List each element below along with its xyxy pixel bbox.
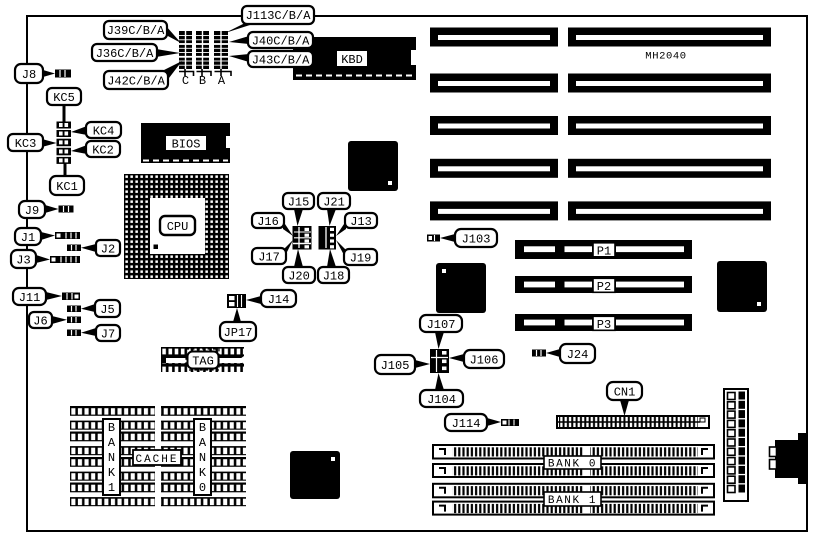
svg-text:J13: J13: [350, 215, 372, 229]
svg-text:J21: J21: [323, 196, 345, 210]
svg-text:P2: P2: [597, 280, 611, 294]
svg-text:N: N: [199, 451, 206, 465]
svg-text:JP17: JP17: [224, 326, 253, 340]
svg-text:1: 1: [108, 481, 115, 495]
svg-text:B: B: [199, 421, 206, 435]
svg-text:J24: J24: [567, 348, 589, 362]
svg-text:J36C/B/A: J36C/B/A: [96, 47, 154, 61]
svg-text:J6: J6: [33, 315, 47, 329]
svg-text:J42C/B/A: J42C/B/A: [107, 75, 165, 89]
svg-text:CACHE: CACHE: [135, 454, 178, 466]
svg-text:J9: J9: [25, 204, 39, 218]
svg-text:TAG: TAG: [192, 355, 214, 369]
svg-text:J18: J18: [323, 270, 345, 284]
svg-text:KC1: KC1: [56, 180, 78, 194]
svg-text:J106: J106: [470, 354, 499, 368]
svg-text:J2: J2: [101, 243, 115, 257]
svg-text:P1: P1: [597, 245, 611, 259]
svg-text:J40C/B/A: J40C/B/A: [252, 35, 310, 49]
svg-text:BIOS: BIOS: [172, 138, 201, 152]
svg-text:J114: J114: [452, 417, 481, 431]
svg-text:BANK 1: BANK 1: [548, 495, 597, 507]
svg-text:J104: J104: [427, 393, 456, 407]
svg-text:CPU: CPU: [167, 220, 189, 234]
svg-text:J20: J20: [288, 270, 310, 284]
svg-text:K: K: [108, 466, 116, 480]
svg-text:J14: J14: [268, 293, 290, 307]
svg-text:J11: J11: [19, 291, 41, 305]
svg-text:N: N: [108, 451, 115, 465]
svg-text:BANK 0: BANK 0: [548, 459, 597, 471]
svg-text:J19: J19: [350, 252, 372, 266]
svg-text:KC4: KC4: [93, 125, 115, 139]
svg-text:CN1: CN1: [614, 386, 636, 400]
svg-text:A: A: [218, 74, 226, 88]
svg-text:C: C: [182, 74, 189, 88]
svg-text:J103: J103: [462, 233, 491, 247]
svg-text:KC5: KC5: [53, 91, 75, 105]
svg-text:J3: J3: [16, 254, 30, 268]
svg-text:J43C/B/A: J43C/B/A: [252, 54, 310, 68]
svg-text:J39C/B/A: J39C/B/A: [107, 24, 165, 38]
svg-text:P3: P3: [597, 318, 611, 332]
svg-text:K: K: [199, 466, 207, 480]
svg-text:J8: J8: [22, 68, 36, 82]
svg-text:B: B: [108, 421, 115, 435]
svg-text:0: 0: [199, 481, 206, 495]
svg-text:J5: J5: [100, 303, 114, 317]
svg-text:KBD: KBD: [341, 53, 363, 67]
svg-text:B: B: [199, 74, 206, 88]
svg-text:J113C/B/A: J113C/B/A: [246, 9, 312, 23]
svg-text:KC3: KC3: [15, 137, 37, 151]
svg-text:J16: J16: [257, 215, 279, 229]
svg-text:J105: J105: [381, 359, 410, 373]
svg-text:A: A: [108, 436, 116, 450]
svg-text:J15: J15: [288, 196, 310, 210]
svg-text:J1: J1: [21, 231, 35, 245]
svg-text:A: A: [199, 436, 207, 450]
svg-text:J17: J17: [258, 251, 280, 265]
svg-text:MH2040: MH2040: [645, 51, 686, 63]
svg-text:J107: J107: [427, 318, 456, 332]
svg-text:J7: J7: [101, 328, 115, 342]
svg-text:KC2: KC2: [92, 144, 114, 158]
